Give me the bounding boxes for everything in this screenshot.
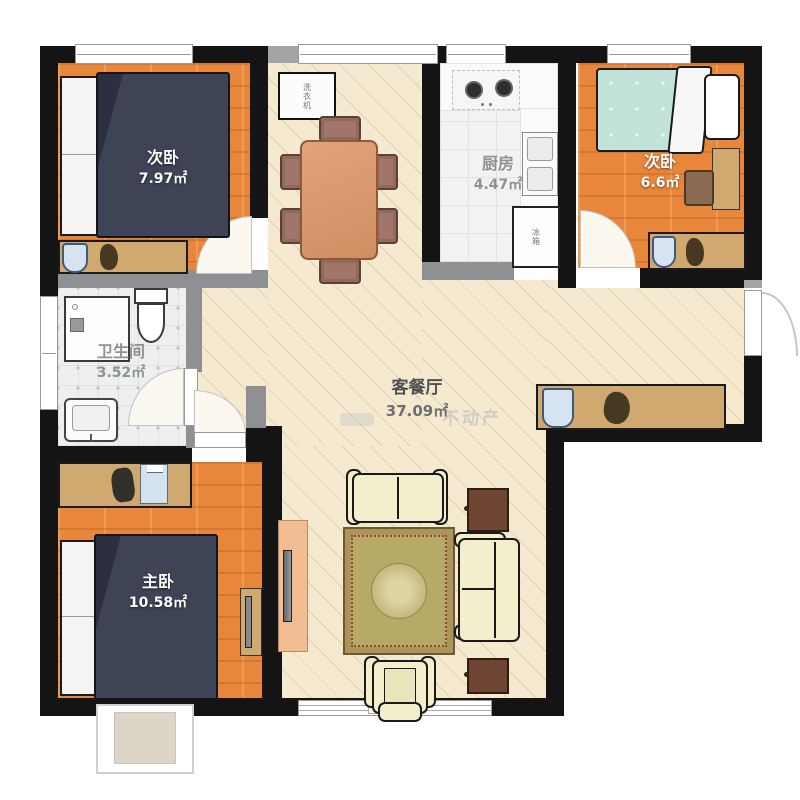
master-tv [245,596,252,648]
master-bed [94,534,218,700]
living-tv [283,550,292,622]
shirt-collar [147,465,163,473]
sofa-cushion-seam [462,588,494,590]
wall-entry-jamb-top [744,280,762,288]
pillow-divider [62,154,100,155]
wall-mid-vertical [546,424,564,716]
dining-table [300,140,378,260]
entry-sideboard-chair [542,388,574,428]
window-dining [298,44,438,64]
toilet-tank [134,288,168,304]
wall-nook-stub [246,386,266,428]
entry-door-leaf [744,290,762,356]
dining-chair-bottom [319,258,361,284]
toilet-bowl [137,303,165,343]
stove [452,70,520,110]
washing-machine: 洗衣机 [278,72,336,120]
kitchen-sink [522,132,558,196]
watermark-text: 不动产 [442,404,502,429]
loveseat-cushion-seam [397,477,399,519]
bedroom-top-left-bed [96,72,230,238]
fridge-label: 冰箱 [531,228,542,246]
rug-medallion [371,563,427,619]
bathroom-sink-faucet [90,434,92,442]
side-table-top [467,488,509,532]
side-table-bottom-knob [464,672,469,677]
bay-window-inner [114,712,176,764]
stove-knob-2 [489,103,492,106]
shower [64,296,130,362]
window-bedroom-top-right [607,44,691,64]
shower-head [70,318,84,332]
sink-basin-bottom [527,167,553,191]
dining-chair-top [319,116,361,142]
bedroom-top-left-chair [62,243,88,273]
stove-burner-left [465,81,483,99]
shower-drain [72,304,78,310]
armchair-footrest [378,702,422,722]
rug [343,527,455,655]
bedroom-top-right-chair [652,236,676,268]
bedroom-top-left-bag [100,244,118,270]
bedroom-top-right-bag [686,238,704,266]
bedroom-top-right-side-desk [712,148,740,210]
wall-bathroom-right [186,288,202,372]
wall-dining-kitchen [422,46,440,264]
wall-top-gray-stub [268,46,298,63]
window-kitchen [446,44,506,64]
wall-right-upper [744,46,762,288]
wall-kitchen-bottom [422,262,514,280]
bedroom-top-right-pillow [704,74,740,140]
sofa-back-seam [494,542,496,638]
watermark-logo [340,413,374,426]
pillow-divider [62,616,98,617]
rug-inner [351,535,447,647]
side-table-bottom [467,658,509,694]
wall-kitchen-bedroom2 [558,46,576,288]
wall-bedroom1-dining [250,46,268,218]
floor-plan-canvas: 冰箱 洗衣机 [0,0,800,800]
window-bedroom-top-left [75,44,193,64]
window-bathroom [40,296,58,410]
entry-door-swing-arc [762,292,798,356]
armchair-seat [384,668,416,706]
stove-burner-right [495,79,513,97]
sofa-three-seat [458,538,520,642]
door-leaf-master [194,432,246,448]
bedroom-top-right-side-chair [684,170,714,206]
wall-master-door-stub [246,426,282,462]
wall-master-top [40,446,192,462]
washing-machine-label: 洗衣机 [302,83,313,110]
bathroom-sink-basin [72,405,110,431]
side-table-top-knob [464,506,469,511]
fridge: 冰箱 [512,206,560,268]
bathroom-sink [64,398,118,442]
stove-knob-1 [481,103,484,106]
sink-basin-top [527,137,553,161]
wardrobe-shirt [140,464,168,504]
